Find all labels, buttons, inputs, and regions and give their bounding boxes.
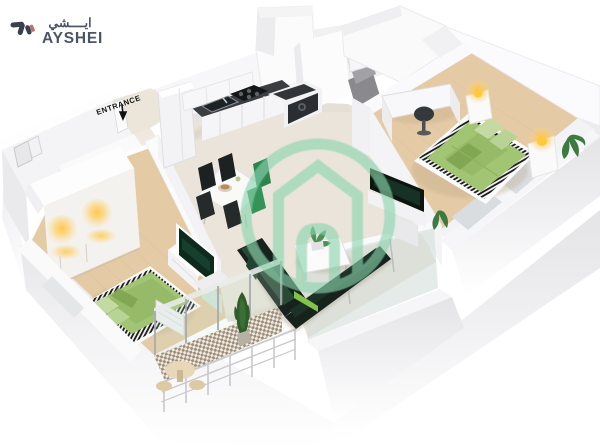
svg-text:ايــــشي: ايــــشي	[48, 16, 91, 31]
svg-text:AYSHEI: AYSHEI	[42, 30, 103, 47]
